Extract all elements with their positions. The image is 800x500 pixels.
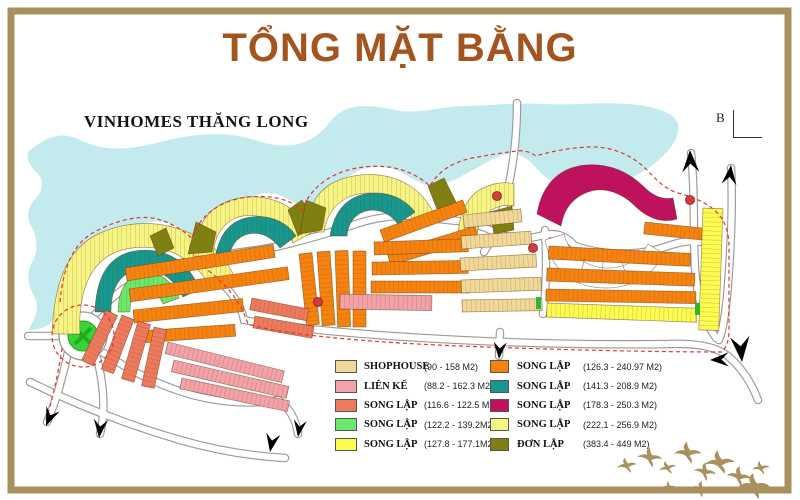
legend-item-range: (222.1 - 256.9 M2) (583, 420, 657, 430)
legend-column-left: SHOPHOUSE (90 - 158 M2) LIÊN KẾ (88.2 - … (335, 357, 497, 454)
legend-item: SONG LẬP (178.3 - 250.3 M2) (490, 396, 662, 415)
section-marker: B (716, 108, 766, 142)
legend-item-name: SONG LẬP (517, 400, 581, 411)
legend-item: SONG LẬP (126.3 - 240.97 M2) (490, 357, 662, 376)
legend-swatch (335, 380, 357, 393)
legend-swatch (490, 360, 509, 373)
section-marker-lines (733, 110, 762, 138)
legend-item-range: (88.2 - 162.3 M2) (424, 381, 493, 391)
legend-item-range: (126.3 - 240.97 M2) (583, 362, 662, 372)
legend-item-name: LIÊN KẾ (364, 381, 422, 392)
legend-item: LIÊN KẾ (88.2 - 162.3 M2) (335, 376, 497, 395)
legend-item-name: SONG LẬP (517, 361, 581, 372)
legend-item-range: (178.3 - 250.3 M2) (583, 400, 657, 410)
legend-swatch (335, 438, 357, 451)
legend-item-range: (122.2 - 139.2M2) (424, 420, 496, 430)
legend-swatch (490, 418, 509, 431)
legend-item-name: SHOPHOUSE (364, 361, 422, 372)
legend-swatch (335, 418, 357, 431)
legend-item-name: SONG LẬP (517, 381, 581, 392)
legend-item: SHOPHOUSE (90 - 158 M2) (335, 357, 497, 376)
section-marker-letter: B (716, 110, 725, 126)
legend-item-name: SONG LẬP (364, 400, 422, 411)
legend-item-name: SONG LẬP (364, 439, 422, 450)
master-plan-page: TỔNG MẶT BẰNG VINHOMES THĂNG LONG B SHOP… (0, 0, 800, 500)
legend: SHOPHOUSE (90 - 158 M2) LIÊN KẾ (88.2 - … (335, 357, 745, 457)
legend-swatch (490, 380, 509, 393)
legend-swatch (335, 360, 357, 373)
legend-item: SONG LẬP (127.8 - 177.1M2) (335, 435, 497, 454)
legend-item: SONG LẬP (122.2 - 139.2M2) (335, 415, 497, 434)
legend-item-range: (383.4 - 449 M2) (583, 439, 650, 449)
legend-item: SONG LẬP (222.1 - 256.9 M2) (490, 415, 662, 434)
legend-item: SONG LẬP (141.3 - 208.9 M2) (490, 376, 662, 395)
legend-item-name: SONG LẬP (517, 419, 581, 430)
legend-swatch (490, 438, 509, 451)
legend-item: SONG LẬP (116.6 - 122.5 M2) (335, 396, 497, 415)
legend-item-range: (116.6 - 122.5 M2) (424, 400, 497, 410)
legend-swatch (335, 399, 357, 412)
legend-swatch (490, 399, 509, 412)
legend-item-name: ĐƠN LẬP (517, 439, 581, 450)
project-name-label: VINHOMES THĂNG LONG (84, 112, 309, 132)
legend-item: ĐƠN LẬP (383.4 - 449 M2) (490, 435, 662, 454)
legend-column-right: SONG LẬP (126.3 - 240.97 M2) SONG LẬP (1… (490, 357, 662, 454)
legend-item-name: SONG LẬP (364, 419, 422, 430)
legend-item-range: (90 - 158 M2) (424, 362, 478, 372)
page-title: TỔNG MẶT BẰNG (0, 26, 800, 71)
legend-item-range: (141.3 - 208.9 M2) (583, 381, 657, 391)
legend-item-range: (127.8 - 177.1M2) (424, 439, 496, 449)
